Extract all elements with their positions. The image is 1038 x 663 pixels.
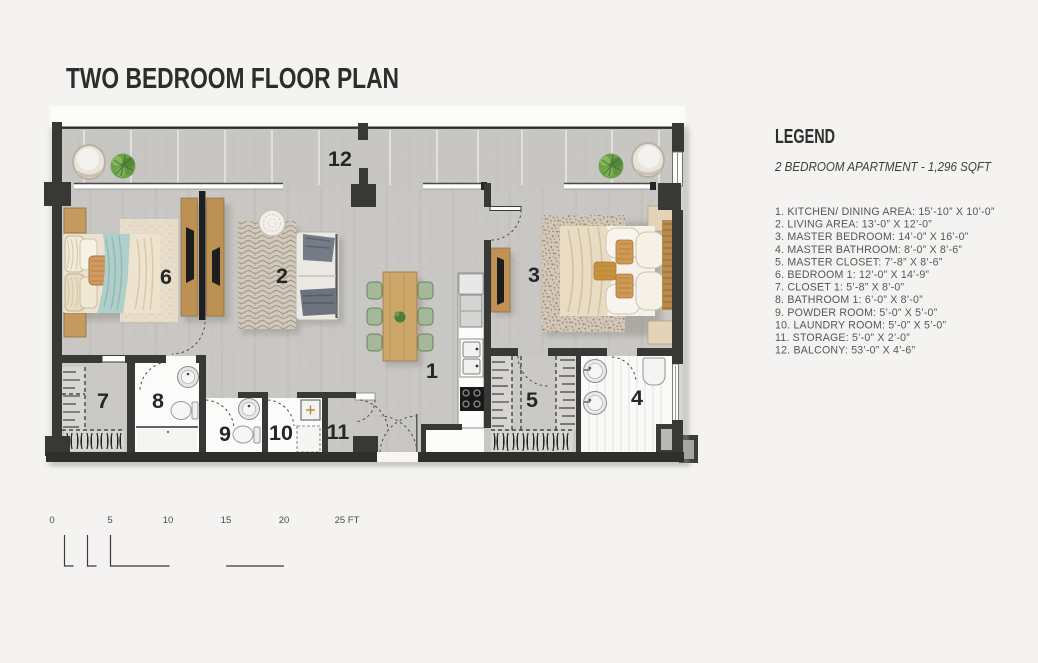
svg-text:LEGEND: LEGEND xyxy=(775,126,835,148)
svg-text:10: 10 xyxy=(269,421,293,445)
svg-text:6. BEDROOM 1: 12’-0” X 14’-9”: 6. BEDROOM 1: 12’-0” X 14’-9” xyxy=(775,269,929,281)
svg-text:6: 6 xyxy=(160,265,172,289)
svg-text:3: 3 xyxy=(528,263,540,287)
svg-text:4: 4 xyxy=(631,386,643,410)
svg-text:5: 5 xyxy=(526,388,538,412)
svg-text:15: 15 xyxy=(221,515,232,526)
svg-text:11: 11 xyxy=(327,420,350,444)
svg-text:11. STORAGE: 5’-0” X 2’-0”: 11. STORAGE: 5’-0” X 2’-0” xyxy=(775,332,910,344)
svg-text:25 FT: 25 FT xyxy=(335,515,360,526)
svg-text:1. KITCHEN/ DINING AREA: 15’-1: 1. KITCHEN/ DINING AREA: 15’-10” X 10’-0… xyxy=(775,206,995,218)
svg-text:2 BEDROOM APARTMENT - 1,296 SQ: 2 BEDROOM APARTMENT - 1,296 SQFT xyxy=(774,160,992,174)
svg-text:5: 5 xyxy=(107,515,112,526)
svg-text:0: 0 xyxy=(49,515,54,526)
svg-text:4. MASTER BATHROOM: 8’-0” X 8’: 4. MASTER BATHROOM: 8’-0” X 8’-6” xyxy=(775,244,962,256)
svg-text:9. POWDER ROOM: 5’-0” X 5’-0”: 9. POWDER ROOM: 5’-0” X 5’-0” xyxy=(775,307,938,319)
svg-text:1: 1 xyxy=(426,359,438,383)
svg-text:10: 10 xyxy=(163,515,174,526)
svg-text:8: 8 xyxy=(152,389,164,413)
svg-text:7. CLOSET 1: 5’-8” X 8’-0”: 7. CLOSET 1: 5’-8” X 8’-0” xyxy=(775,282,905,294)
svg-text:5. MASTER CLOSET: 7’-8” X 8’-6: 5. MASTER CLOSET: 7’-8” X 8’-6” xyxy=(775,256,943,268)
svg-text:9: 9 xyxy=(219,422,231,446)
svg-text:10. LAUNDRY ROOM: 5’-0” X 5’-0: 10. LAUNDRY ROOM: 5’-0” X 5’-0” xyxy=(775,319,947,331)
svg-text:2. LIVING AREA: 13’-0” X 12’-0: 2. LIVING AREA: 13’-0” X 12’-0” xyxy=(775,219,932,231)
svg-text:8. BATHROOM 1: 6’-0” X 8’-0”: 8. BATHROOM 1: 6’-0” X 8’-0” xyxy=(775,294,923,306)
svg-text:TWO BEDROOM FLOOR PLAN: TWO BEDROOM FLOOR PLAN xyxy=(66,63,399,95)
svg-text:20: 20 xyxy=(279,515,290,526)
svg-text:12. BALCONY: 53’-0” X 4’-6”: 12. BALCONY: 53’-0” X 4’-6” xyxy=(775,345,916,357)
svg-text:12: 12 xyxy=(328,147,352,171)
svg-text:3. MASTER BEDROOM: 14’-0” X 16: 3. MASTER BEDROOM: 14’-0” X 16’-0” xyxy=(775,231,969,243)
svg-text:7: 7 xyxy=(97,389,109,413)
svg-text:2: 2 xyxy=(276,264,288,288)
